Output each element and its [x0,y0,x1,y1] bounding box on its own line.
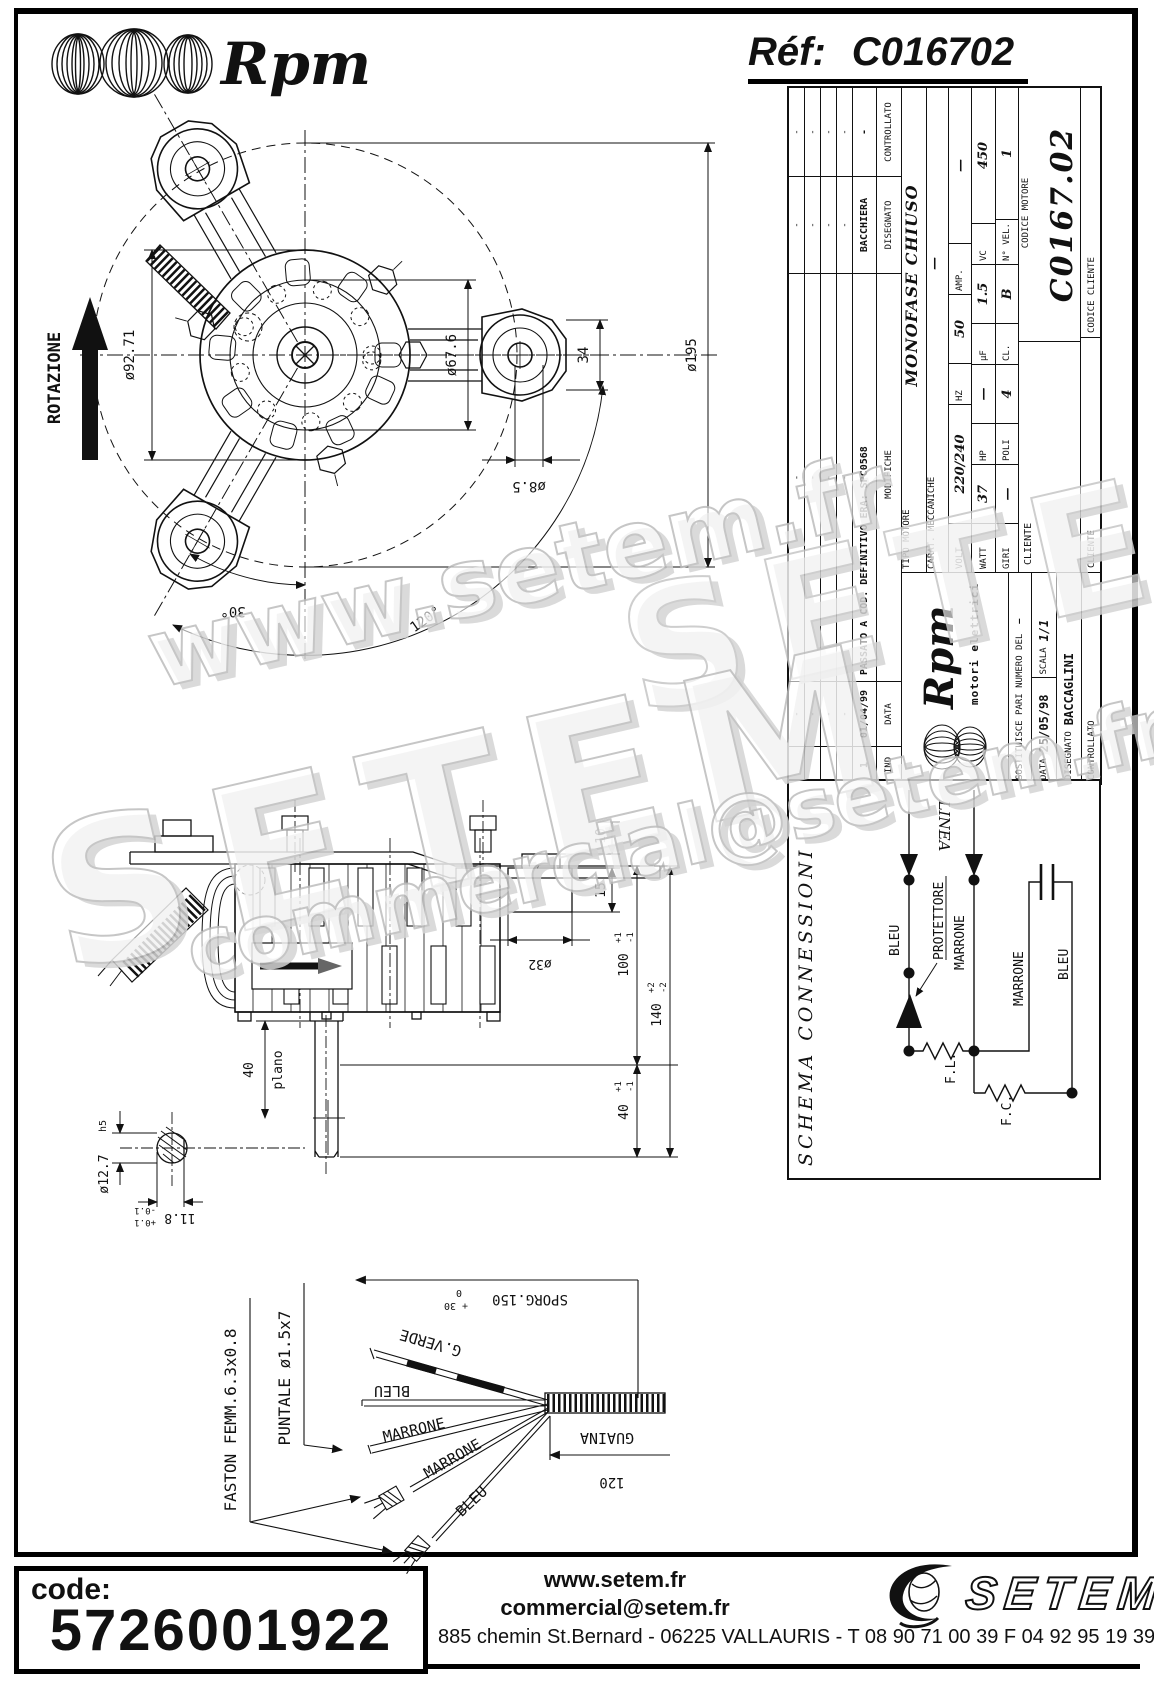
label-g-verde: G.VERDE [398,1325,464,1360]
footer-contact: www.setem.fr commercial@setem.fr [450,1566,780,1622]
rotation-label: ROTAZIONE [45,332,65,424]
ref-label: Réf: [748,30,826,74]
label-puntale: PUNTALE ø1.5x7 [275,1311,294,1446]
dim-40-piano: 40 [242,1062,257,1078]
setem-swirl-icon [880,1558,966,1628]
label-linea: LINEA [935,800,953,852]
shaft-section-detail [120,1112,305,1186]
cable-drawing: FASTON FEMM.6.3x0.8 PUNTALE ø1.5x7 SPORG… [170,1250,690,1560]
spec-row-volt: VOLT 220/240 HZ 50 AMP. — [949,88,972,572]
dim-32: ø32 [528,956,551,971]
dim-angle-30: 30° [220,603,245,619]
codice-cliente-strip: CODICE CLIENTE [1081,88,1102,337]
resistor-fc [974,1051,1072,1101]
svg-text:140: 140 [650,1003,665,1026]
svg-text:-1: -1 [626,932,636,943]
dim-shaft-diameter: ø12.7 [97,1154,112,1193]
svg-text:40: 40 [617,1104,632,1120]
shaft [235,1012,500,1174]
footer-email: commercial@setem.fr [450,1594,780,1622]
revision-row: - - - - [837,88,853,783]
codice-motore-cell: CODICE MOTORE C0167.02 [1019,88,1080,341]
svg-text:+ 30: + 30 [444,1300,468,1311]
cliente-cell: CLIENTE [1019,341,1080,572]
setem-wordmark: SETEM [963,1566,1154,1620]
dim-sporg: SPORG.150 + 30 0 [444,1287,568,1311]
frame-top-border [14,8,1138,14]
svg-text:+1: +1 [614,1081,624,1092]
side-dimensions [112,822,678,1207]
spec-row-watt: WATT 37 HP — µF 1.5 VC 450 [972,88,995,572]
revision-row: - - - - [805,88,821,783]
controllato-row: CONTROLLATO [1082,573,1102,783]
faston-connector [364,1485,404,1519]
label-marrone-cap: MARRONE [1012,951,1027,1006]
svg-text:-1: -1 [626,1081,636,1092]
centerlines [80,130,720,660]
rpm-coil-icon: Rpm [36,22,376,106]
label-piano: plano [271,1050,286,1089]
rpm-wordmark: Rpm [219,30,371,98]
revision-row-filled: 1 01/04/99 PASSATO A COD. DEFINITIVO ERA… [853,88,877,783]
dim-h5: h5 [98,1120,109,1132]
label-fc: F.C. [1000,1095,1015,1126]
label-protettore: PROTETTORE [932,882,947,960]
junction-dots [904,875,1078,1099]
label-marrone-1: MARRONE [381,1414,447,1446]
revision-header: IND DATA MODIFICHE DISEGNATO CONTROLLATO [877,88,902,783]
dim-140: 140 +2 -2 [647,982,669,1027]
svg-text:100: 100 [617,953,632,976]
motor-body [172,250,440,489]
frame-left-border [14,8,18,1556]
dim-core-diameter: ø92.71 [122,330,138,381]
revision-row: - - - - [821,88,837,783]
label-bleu-1: BLEU [374,1382,410,1400]
rpm-subtitle: motori elettrici [968,583,981,705]
rpm-logo: Rpm [36,22,376,106]
dim-15: 15 [594,882,609,898]
wire-bleu-2 [432,1412,550,1541]
label-guaina: GUAINA [580,1429,634,1447]
tipo-motore-row: TIPO MOTORE MONOFASE CHIUSO [902,88,927,572]
label-fl: F.L. [944,1053,959,1084]
label-marrone-2: MARRONE [421,1435,485,1482]
title-block: - - - - - - - - - - - - - - - - 1 01/ [787,86,1102,785]
svg-text:+0.1: +0.1 [134,1217,156,1227]
frame-right-border [1132,8,1138,1556]
code-box: code: 5726001922 [14,1566,428,1674]
dim-bolt-circle: ø195 [684,338,700,372]
dim-angle-120: 120° [407,604,444,636]
dim-10: 10 [594,828,609,844]
capacitor-icon [1041,864,1053,900]
svg-text:+1: +1 [614,932,624,943]
ref-value: C016702 [852,30,1014,74]
dim-11-8: 11.8 +0.1 -0.1 [134,1205,195,1227]
dim-40-right: 40 +1 -1 [614,1081,636,1120]
linea-arrow [965,854,983,876]
setem-logo: SETEM [880,1558,1154,1628]
dim-120: 120 [599,1474,624,1490]
svg-text:11.8: 11.8 [164,1210,195,1225]
titleblock-rpm-logo: Rpm motori elettrici [902,573,1009,783]
front-view-drawing: ø92.71 ø67.6 34 ø195 ø8.5 30° 120° ROTAZ… [20,115,760,735]
cliente-strip: CLIENTE [1081,337,1102,572]
wire-marrone-cap [974,882,1041,1051]
connection-schematic: LINEA BLEU MARRONE PROTETTORE F.L. F.C. … [789,781,1099,1178]
svg-text:+2: +2 [647,982,657,993]
sostituisce-row: SOSTITUISCE PARI NUMERO DEL — [1009,573,1032,783]
svg-text:-0.1: -0.1 [134,1205,156,1215]
rotation-arrow [72,297,108,460]
revision-row: - - - - [789,88,805,783]
code-value: 5726001922 [19,1597,423,1664]
rpm-coil-icon [920,717,990,777]
nameplate [252,943,352,989]
label-bleu-cap: BLEU [1057,949,1072,980]
ref-block: Réf:C016702 [748,30,1028,84]
label-marrone: MARRONE [953,915,968,970]
footer-site: www.setem.fr [450,1566,780,1594]
spec-row-giri: GIRI — POLI 4 CL. B N° VEL. 1 [996,88,1019,572]
sheath [545,1393,665,1413]
drawing-sheet: Rpm Réf:C016702 [0,0,1154,1683]
disegnato-row: DISEGNATO BACCAGLINI [1057,573,1082,783]
wire-bleu-cap [1053,882,1072,1093]
data-scala-row: DATA 25/05/98 SCALA 1/1 [1032,573,1057,783]
mounting-stud [282,800,496,872]
footer-address: 885 chemin St.Bernard - 06225 VALLAURIS … [438,1626,1140,1649]
svg-text:0: 0 [456,1287,462,1298]
dim-hole-diameter: ø8.5 [512,478,546,494]
side-view-drawing: 10 15 ø32 100 +1 -1 140 +2 -2 40 +1 -1 4… [60,760,700,1190]
dim-spigot-diameter: ø67.6 [444,334,460,376]
label-bleu-2: BLEU [452,1482,491,1520]
dim-plate-width: 34 [576,347,592,364]
svg-text:-2: -2 [659,982,669,993]
cable-exit-bundle [98,888,208,986]
protettore-icon [896,994,922,1028]
label-faston: FASTON FEMM.6.3x0.8 [221,1328,240,1511]
bracket-plate [130,820,660,912]
dim-100: 100 +1 -1 [614,932,636,977]
front-dimensions [144,143,715,655]
resistor-fl [909,1043,974,1059]
svg-text:SPORG.150: SPORG.150 [492,1291,568,1307]
linea-arrow [900,854,918,876]
footer-divider [425,1664,1140,1669]
carat-row: CARAT. MECCANICHE — [927,88,949,572]
label-bleu: BLEU [888,925,903,956]
rpm-wordmark-small: Rpm [916,605,963,709]
codice-motore-value: C0167.02 [1045,88,1080,341]
schema-box: SCHEMA CONNESSIONI [787,779,1101,1180]
